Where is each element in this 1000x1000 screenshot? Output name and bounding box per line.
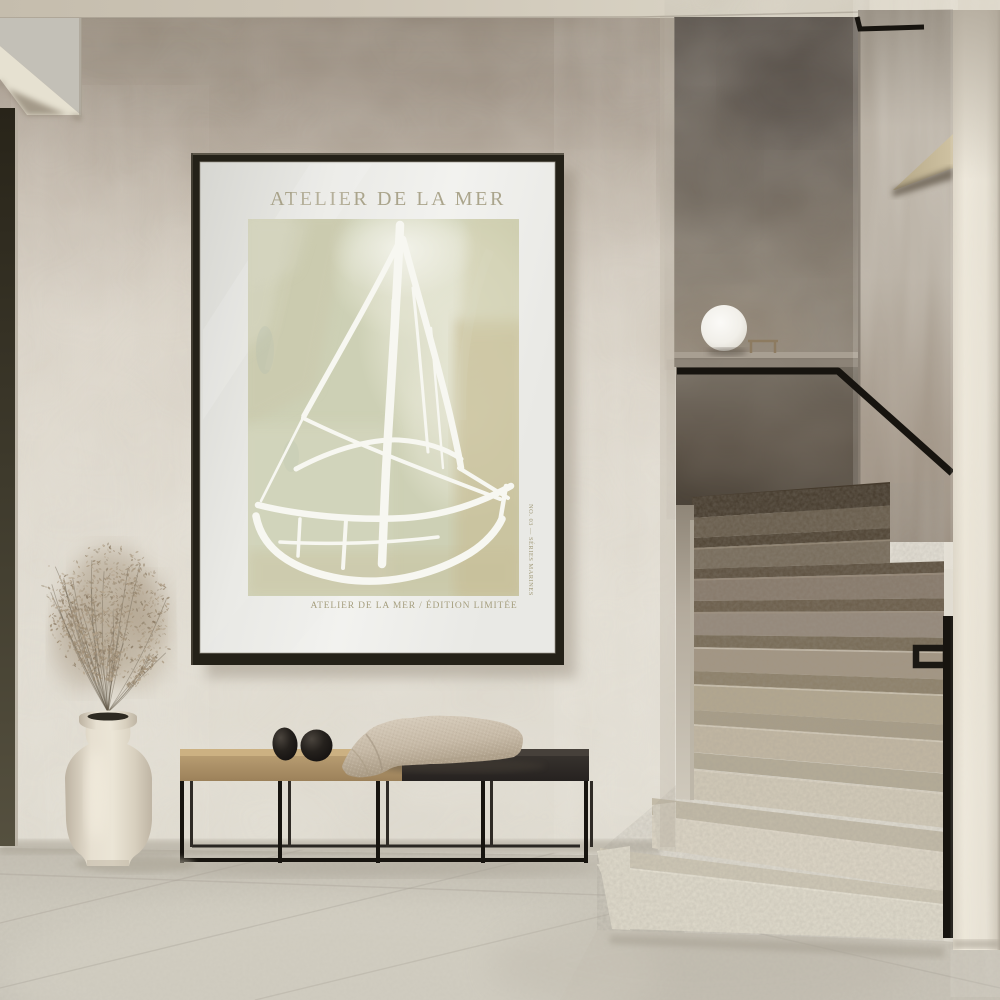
svg-text:ATELIER DE LA MER / ÉDITION LI: ATELIER DE LA MER / ÉDITION LIMITÉE [310,599,517,611]
svg-text:NO. 03 — SÉRIES MARINES: NO. 03 — SÉRIES MARINES [527,504,535,596]
